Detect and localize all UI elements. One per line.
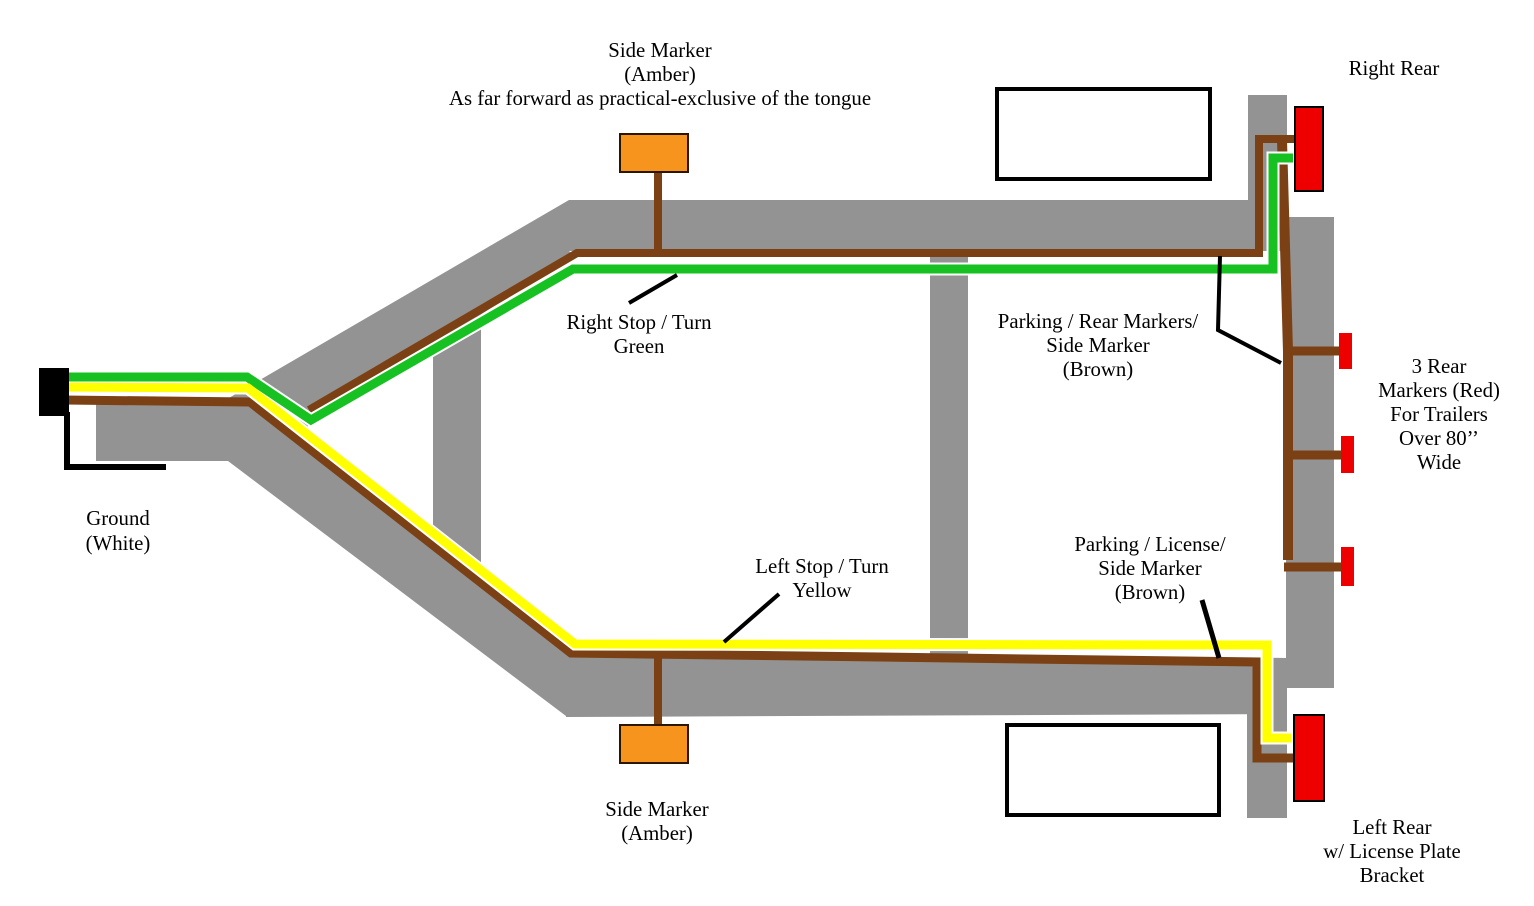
svg-text:Side Marker: Side Marker [608,39,711,62]
svg-text:Right Stop / Turn: Right Stop / Turn [566,311,712,334]
svg-text:As far forward as practical-ex: As far forward as practical-exclusive of… [449,87,871,110]
svg-text:Parking / Rear Markers/: Parking / Rear Markers/ [998,310,1199,333]
svg-text:(Amber): (Amber) [621,822,693,845]
svg-text:For Trailers: For Trailers [1390,403,1488,426]
svg-text:Left Stop / Turn: Left Stop / Turn [755,555,889,578]
svg-text:(Brown): (Brown) [1115,581,1186,604]
svg-text:Markers (Red): Markers (Red) [1378,379,1500,402]
svg-text:Side Marker: Side Marker [605,798,708,821]
svg-text:Right Rear: Right Rear [1349,57,1440,80]
svg-text:Side Marker: Side Marker [1098,557,1201,580]
svg-text:Green: Green [614,335,665,358]
svg-text:Side Marker: Side Marker [1046,334,1149,357]
svg-text:Left Rear: Left Rear [1352,816,1431,839]
svg-text:Parking / License/: Parking / License/ [1074,533,1226,556]
svg-text:3 Rear: 3 Rear [1412,355,1467,378]
svg-text:w/ License Plate: w/ License Plate [1323,840,1460,863]
svg-text:(White): (White) [86,532,151,555]
svg-text:(Brown): (Brown) [1063,358,1134,381]
svg-text:Over 80’’: Over 80’’ [1399,427,1479,450]
svg-text:Bracket: Bracket [1360,864,1425,887]
svg-text:Wide: Wide [1417,451,1461,474]
svg-text:Ground: Ground [86,507,150,530]
svg-text:Yellow: Yellow [792,579,851,602]
svg-text:(Amber): (Amber) [624,63,696,86]
